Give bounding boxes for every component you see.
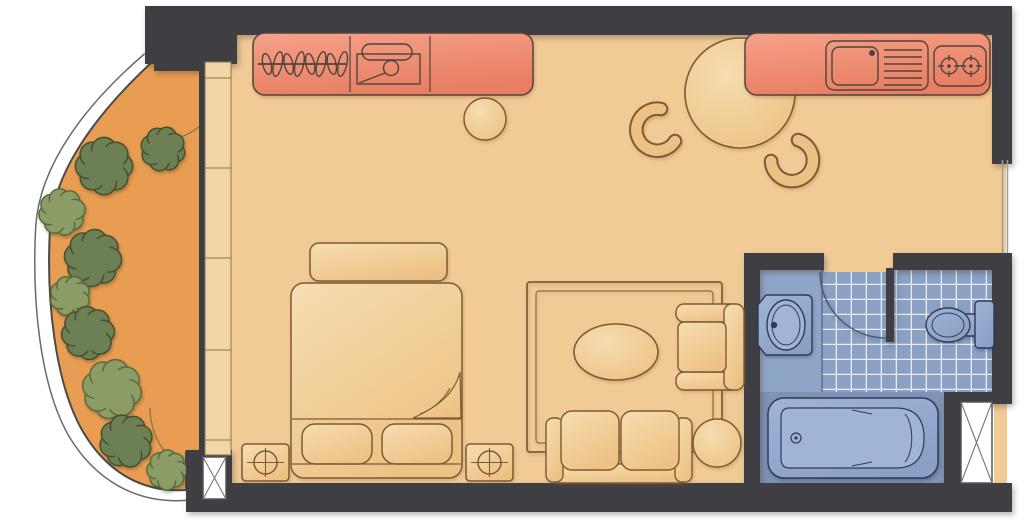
- floor-plan-canvas: [0, 0, 1025, 520]
- floor-plan: [0, 0, 1025, 520]
- shrub: [62, 307, 115, 360]
- shrub: [100, 415, 152, 467]
- glazing-spine: [199, 62, 205, 486]
- pillow: [302, 424, 372, 464]
- entry-recess-floor-patch: [994, 402, 1007, 483]
- coffee-table: [574, 324, 658, 380]
- wall-top: [145, 6, 1012, 35]
- right-window-floor-patch: [992, 160, 1006, 253]
- wall-top-left-block: [145, 6, 237, 64]
- side-table: [693, 419, 741, 467]
- shrub: [83, 360, 142, 419]
- duct-shaft-bathroom: [961, 402, 992, 483]
- bathtub: [768, 398, 938, 478]
- wall-bathroom-right: [992, 253, 1012, 394]
- shrub: [75, 137, 132, 194]
- bathroom-door-leaf: [886, 268, 894, 342]
- wall-bathroom-left: [744, 253, 760, 512]
- shrub: [141, 127, 184, 170]
- foot-bench: [310, 243, 447, 281]
- sofa: [546, 411, 692, 483]
- wall-bathroom-top-right: [893, 253, 992, 270]
- duct-shaft-balcony: [203, 457, 226, 499]
- wall-right-upper: [992, 6, 1012, 164]
- armchair: [676, 304, 744, 390]
- shrub: [147, 450, 187, 490]
- pillow: [382, 424, 452, 464]
- bathroom-door-threshold: [824, 253, 893, 272]
- washbasin: [758, 295, 812, 355]
- wall-shaft-left: [944, 392, 961, 483]
- nightstand-lamp: [466, 444, 513, 481]
- wall-bottom: [186, 483, 1012, 512]
- balcony: [39, 60, 226, 492]
- shrub: [39, 189, 85, 235]
- nightstand-lamp: [242, 444, 289, 481]
- stool: [464, 98, 506, 140]
- wall-bathroom-top-left: [744, 253, 824, 270]
